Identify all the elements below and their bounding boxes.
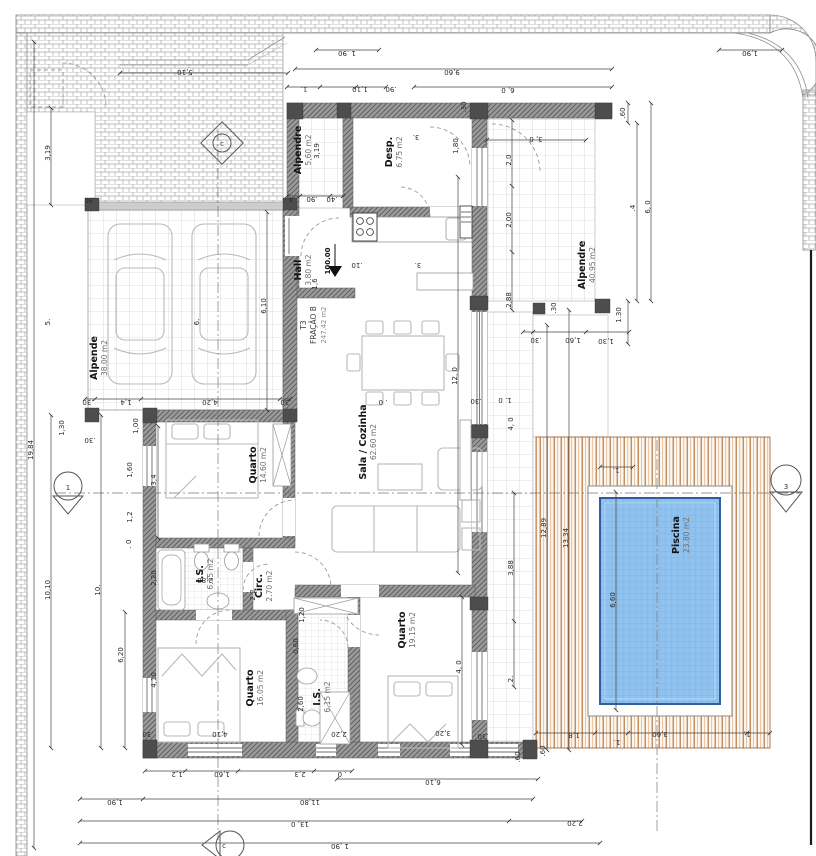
boundary-wall-top <box>16 15 770 33</box>
dim-label: .90 <box>306 195 317 203</box>
room-name-label: Circ. <box>254 574 265 598</box>
room-area-label: 14.60 m2 <box>259 447 268 483</box>
dim-label: 4,10 <box>150 672 158 688</box>
dim-label: .30 <box>82 398 93 406</box>
dim-label: 1,2 <box>171 770 182 778</box>
dim-label: 0,60 <box>292 638 300 654</box>
dim-label: 10,10 <box>44 580 52 600</box>
dim-label: .30 <box>477 732 488 740</box>
dim-label: 2,20 <box>150 570 158 586</box>
wall-sala-quartoSE <box>295 585 475 597</box>
dim-label: . 0 <box>125 540 133 549</box>
dim-label: .30 <box>280 398 291 406</box>
dim-label: 1. <box>613 466 620 474</box>
dim-label: .30 <box>470 397 481 405</box>
dim-label: 1,2 <box>126 511 134 522</box>
dim-label: 3. <box>415 261 422 269</box>
dim-label: 1,90 <box>742 49 758 57</box>
room-area-label: 19.15 m2 <box>408 612 417 648</box>
dim-label: .30 <box>530 336 541 344</box>
room-name-label: Quarto <box>397 611 408 648</box>
dim-label: 4,10 <box>212 730 228 738</box>
carport-edge-north <box>85 202 285 210</box>
dim-label: 2,20 <box>567 819 583 827</box>
dim-label: 1, <box>744 730 751 738</box>
bed-quarto-sw <box>158 648 240 742</box>
dim-label: 1,30 <box>598 337 614 345</box>
floor-plan-sheet: 5,101 .901,909,606, 01.1,10.9019,843,195… <box>0 0 816 856</box>
boundary-wall-left <box>16 33 27 856</box>
dim-label: 1,60 <box>126 462 134 478</box>
driveway <box>27 33 287 205</box>
washbasin <box>297 668 317 684</box>
marker-letter: c <box>220 140 224 148</box>
sofa <box>332 448 482 552</box>
dim-label: 3. <box>413 133 420 141</box>
floor-plan-drawing: 5,101 .901,909,606, 01.1,10.9019,843,195… <box>0 0 816 856</box>
dim-label: 2,88 <box>505 292 513 308</box>
dim-label: .60 <box>514 751 522 762</box>
dim-label: 12,89 <box>540 518 548 538</box>
fraction-name: FRAÇÃO B <box>309 306 318 344</box>
room-area-label: 38.00 m2 <box>100 340 109 376</box>
room-name-label: Alpendre <box>293 126 304 175</box>
room-area-label: 3.80 m2 <box>304 254 313 285</box>
dim-label: .60 <box>539 745 547 756</box>
dim-label: 4, 0 <box>455 660 463 673</box>
room-name-label: Alpendre <box>577 241 588 290</box>
dim-label: .30 <box>460 101 468 112</box>
fraction-title: T3 <box>299 320 308 331</box>
dim-label: 1 .90 <box>338 49 356 57</box>
dim-label: 1. <box>614 738 621 746</box>
pool-water <box>600 498 720 704</box>
dim-label: 3,19 <box>313 143 321 159</box>
room-name-label: Sala / Cozinha <box>358 404 369 479</box>
dim-label: 3,19 <box>44 145 52 161</box>
dim-label: 1,00 <box>132 418 140 434</box>
kitchen <box>352 206 473 290</box>
dim-label: 2,20 <box>331 730 347 738</box>
dim-label: .30 <box>550 302 558 313</box>
room-name-label: Quarto <box>245 669 256 706</box>
room-name-label: Quarto <box>248 446 259 483</box>
dim-label: 13, 0 <box>291 820 309 828</box>
dim-label: 1,4 <box>120 398 132 406</box>
wall-porchN-desp <box>343 118 353 208</box>
room-area-label: 5,60 m2 <box>304 134 313 165</box>
boundary-wall-right <box>803 90 816 250</box>
marker-letter: c <box>222 842 226 850</box>
dim-label: .10 <box>351 261 362 269</box>
dim-label: 1 ,90 <box>331 842 349 850</box>
dining-table <box>347 321 459 405</box>
stove-icon <box>353 213 377 241</box>
dim-label: . 0 <box>338 770 347 778</box>
dim-label: .40 <box>326 195 337 203</box>
marker-letter: 3 <box>784 483 788 491</box>
dim-label: 9,60 <box>444 68 460 76</box>
dim-label: 5,10 <box>177 68 193 76</box>
level-value-label: 100.00 <box>324 247 332 274</box>
dim-label: 1. 0 <box>498 396 511 404</box>
curb-line-outer <box>735 33 803 98</box>
dim-label: 1,60 <box>565 336 581 344</box>
dim-label: 4, 0 <box>507 417 515 430</box>
dim-label: .60 <box>619 107 627 118</box>
dim-label: 3,60 <box>652 730 668 738</box>
room-name-label: Desp. <box>384 137 395 167</box>
boundary-wall-corner <box>770 15 816 95</box>
dim-label: .30 <box>142 730 153 738</box>
room-name-label: Alpende <box>89 336 100 380</box>
dim-label: .30 <box>84 196 95 204</box>
room-area-label: 40.95 m2 <box>588 247 597 283</box>
room-name-label: I.S. <box>195 565 206 583</box>
bidet <box>224 544 239 570</box>
curb-line-inner <box>748 33 808 98</box>
room-area-label: 6.15 m2 <box>206 558 215 589</box>
room-area-label: 62.60 m2 <box>369 424 378 460</box>
dim-label: 19,84 <box>27 439 35 460</box>
dim-label: 2,0 <box>505 154 513 165</box>
dim-label: 1.30 <box>615 307 623 323</box>
room-area-label: 6,15 m2 <box>323 681 332 712</box>
dim-label: 2,00 <box>505 212 513 228</box>
room-area-label: 6.75 m2 <box>395 136 404 167</box>
dim-label: 1. <box>301 85 308 93</box>
pool-deck <box>536 437 770 748</box>
dim-label: .4 <box>288 195 295 203</box>
dim-label: 6,60 <box>609 592 617 608</box>
dim-label: 6, 0 <box>501 86 514 94</box>
dim-label: 4,20 <box>202 398 218 406</box>
room-area-label: 23.80 m2 <box>682 517 691 553</box>
dim-label: 3,88 <box>507 560 515 576</box>
fraction-area: 247.42 m2 <box>320 307 328 344</box>
dim-label: 3, 0 <box>529 135 542 143</box>
room-name-label: Hall <box>293 260 304 281</box>
dim-label: . 0 <box>379 398 388 406</box>
dim-label: 6,10 <box>425 778 441 786</box>
dim-label: 11,80 <box>300 798 320 806</box>
marker-letter: 1 <box>66 484 70 492</box>
dim-label: 2. <box>507 676 515 683</box>
bed-quarto-nw <box>166 420 258 498</box>
room-name-label: Piscina <box>671 516 682 554</box>
carport-floor <box>88 210 283 410</box>
dim-label: 3,20 <box>435 729 451 737</box>
dim-label: 2,60 <box>297 696 305 712</box>
wall-north <box>287 103 612 118</box>
wall-hall-south <box>297 288 355 298</box>
dim-label: 6, 0 <box>644 200 652 213</box>
dim-label: 1,10 <box>352 85 368 93</box>
dim-label: 13,34 <box>562 527 570 548</box>
dim-label: 1,8 <box>568 731 579 739</box>
tv-bench <box>460 420 471 500</box>
dim-label: 6,10 <box>260 298 268 314</box>
dim-label: .90 <box>385 85 396 93</box>
dim-label: 6. <box>193 319 201 326</box>
room-name-label: I.S. <box>312 688 323 706</box>
walkway <box>533 315 608 437</box>
dim-label: 2,3 <box>294 770 305 778</box>
room-area-label: 2.70 m2 <box>265 570 274 601</box>
dim-label: .30 <box>84 436 95 444</box>
room-area-label: 16.05 m2 <box>256 670 265 706</box>
dim-label: 1,80 <box>452 138 460 154</box>
dim-label: 1,30 <box>58 420 66 436</box>
dim-label: 6,20 <box>117 647 125 663</box>
dim-label: .4 <box>629 204 637 211</box>
dim-label: 12, 0 <box>451 367 459 385</box>
side-path <box>27 112 95 205</box>
dim-label: 1,60 <box>214 770 230 778</box>
dim-label: 1,20 <box>298 607 306 623</box>
kitchen-island <box>417 273 473 290</box>
dim-label: 1,90 <box>107 798 123 806</box>
dim-label: 3,4 <box>150 474 158 486</box>
dim-label: 10. <box>94 584 102 595</box>
dim-label: 5. <box>44 319 52 326</box>
